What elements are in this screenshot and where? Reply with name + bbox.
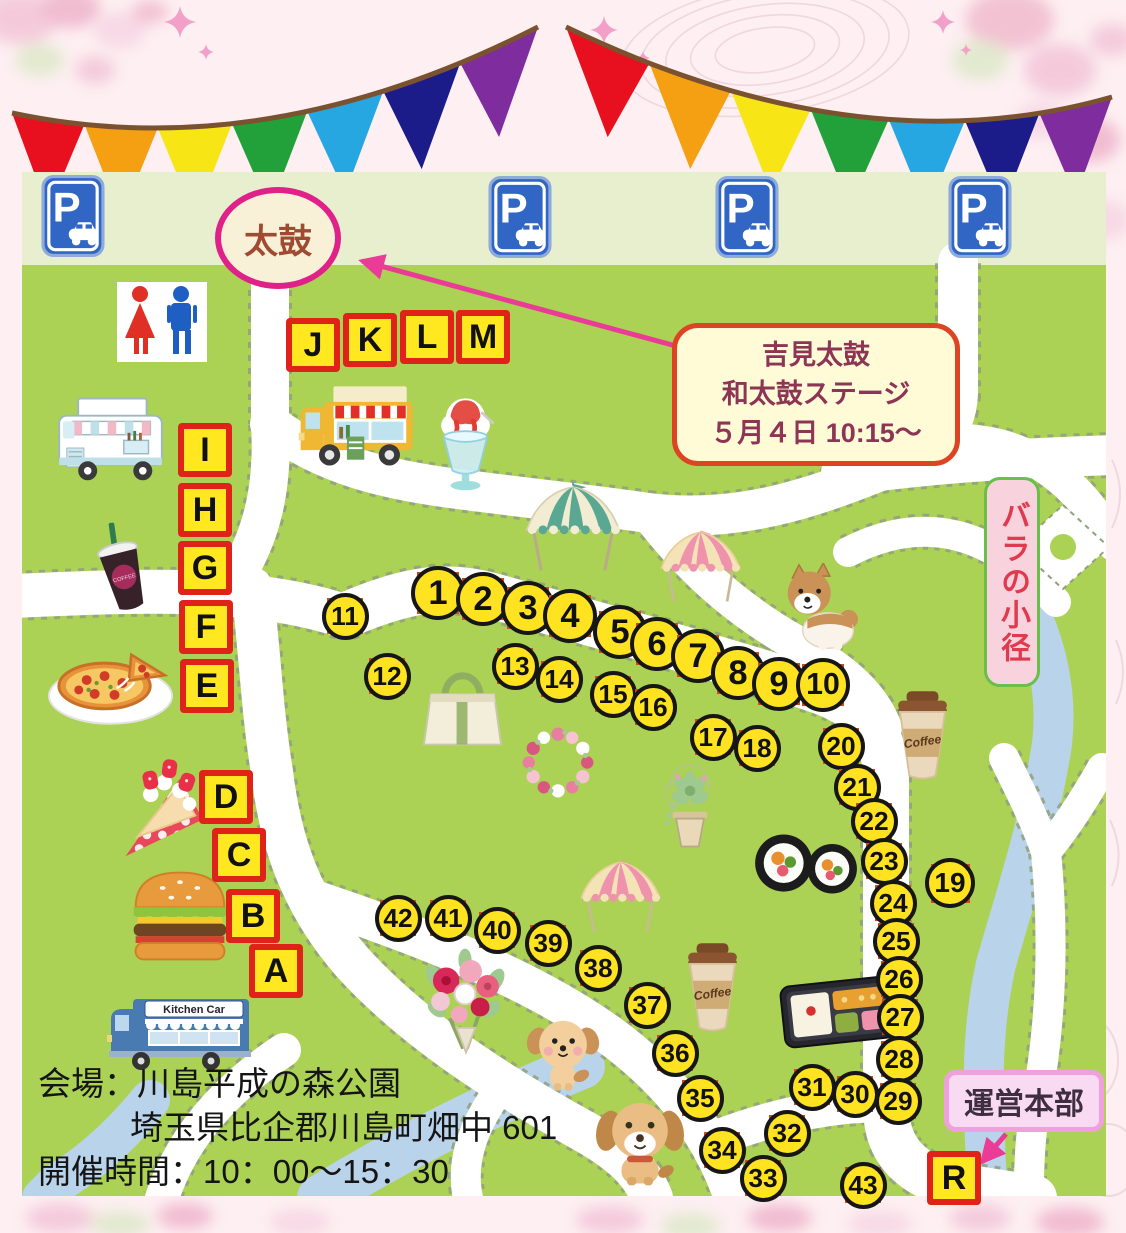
parking-sign-4 (948, 176, 1012, 258)
stall-marker-37: 37 (624, 982, 671, 1029)
stall-number: 36 (652, 1030, 699, 1077)
stall-number: 13 (492, 643, 539, 690)
parking-sign-1 (41, 175, 105, 257)
flower-wreath (514, 720, 602, 805)
tent-pink-2 (573, 857, 668, 935)
stall-number: 32 (764, 1110, 811, 1157)
stall-marker-17: 17 (690, 714, 737, 761)
stall-number: 29 (875, 1078, 922, 1125)
stage-info-line3: ５月４日 10:15～ (710, 414, 922, 453)
coffee-cup-2 (670, 932, 755, 1037)
event-map-poster: P (0, 0, 1126, 1233)
iced-coffee (80, 513, 165, 628)
food-truck-yellow (291, 375, 426, 475)
stall-marker-38: 38 (575, 945, 622, 992)
stall-number: 39 (525, 920, 572, 967)
stall-number: 11 (322, 593, 369, 640)
stall-marker-34: 34 (699, 1127, 746, 1174)
stall-number: 42 (375, 895, 422, 942)
area-marker-L: L (400, 310, 454, 364)
stall-number: 28 (876, 1036, 923, 1083)
stall-marker-40: 40 (474, 907, 521, 954)
stage-info-box: 吉見太鼓 和太鼓ステージ ５月４日 10:15～ (672, 323, 960, 466)
stall-number: 23 (861, 838, 908, 885)
crepe (106, 742, 211, 862)
kitchen-car-blue (105, 975, 255, 1075)
stall-number: 4 (543, 589, 597, 643)
area-marker-E: E (180, 659, 234, 713)
stall-marker-20: 20 (818, 723, 865, 770)
area-marker-D: D (199, 770, 253, 824)
stall-marker-4: 4 (543, 589, 597, 643)
area-marker-J: J (286, 318, 340, 372)
stall-number: 27 (877, 994, 924, 1041)
stage-info-line2: 和太鼓ステージ (722, 375, 910, 414)
hq-label-box: 運営本部 (944, 1070, 1104, 1132)
stall-number: 33 (740, 1155, 787, 1202)
stall-marker-30: 30 (832, 1071, 879, 1118)
stall-marker-32: 32 (764, 1110, 811, 1157)
rose-path-label: バラの小径 (984, 477, 1040, 687)
food-truck-white (43, 391, 178, 486)
tent-pink-1 (653, 527, 748, 605)
venue-line: 会場：川島平成の森公園 (38, 1062, 557, 1106)
stall-number: 43 (840, 1162, 887, 1209)
restroom-icon (117, 282, 207, 362)
area-marker-F: F (179, 600, 233, 654)
shaved-ice (428, 388, 503, 493)
stall-marker-39: 39 (525, 920, 572, 967)
stall-marker-43: 43 (840, 1162, 887, 1209)
stall-marker-10: 10 (796, 658, 850, 712)
stall-number: 18 (734, 725, 781, 772)
stall-number: 38 (575, 945, 622, 992)
venue-hours: 開催時間：10：00～15：30 (38, 1150, 557, 1194)
stall-marker-11: 11 (322, 593, 369, 640)
area-marker-A: A (249, 944, 303, 998)
area-marker-B: B (226, 889, 280, 943)
stall-marker-28: 28 (876, 1036, 923, 1083)
taiko-stage-oval: 太鼓 (215, 187, 341, 289)
stall-number: 14 (536, 656, 583, 703)
stall-marker-14: 14 (536, 656, 583, 703)
venue-address: 埼玉県比企郡川島町畑中 601 (38, 1106, 557, 1150)
area-marker-C: C (212, 828, 266, 882)
area-marker-H: H (178, 483, 232, 537)
stall-marker-18: 18 (734, 725, 781, 772)
area-marker-K: K (343, 313, 397, 367)
taiko-label: 太鼓 (244, 214, 312, 263)
flower-pot (650, 753, 730, 853)
stall-marker-33: 33 (740, 1155, 787, 1202)
venue-info: 会場：川島平成の森公園 埼玉県比企郡川島町畑中 601 開催時間：10：00～1… (38, 1062, 557, 1195)
stall-marker-35: 35 (677, 1075, 724, 1122)
sushi-roll (749, 825, 864, 903)
stall-number: 17 (690, 714, 737, 761)
stall-marker-12: 12 (364, 653, 411, 700)
stall-number: 12 (364, 653, 411, 700)
stall-number: 41 (425, 895, 472, 942)
stall-number: 19 (925, 858, 975, 908)
stall-number: 37 (624, 982, 671, 1029)
stage-info-line1: 吉見太鼓 (762, 336, 870, 375)
dog-puppy (590, 1090, 690, 1190)
stall-number: 34 (699, 1127, 746, 1174)
pizza (45, 638, 180, 730)
stall-marker-41: 41 (425, 895, 472, 942)
stall-number: 16 (630, 684, 677, 731)
tent-green (517, 482, 629, 574)
stall-marker-36: 36 (652, 1030, 699, 1077)
stall-number: 35 (677, 1075, 724, 1122)
stall-number: 20 (818, 723, 865, 770)
stall-number: 40 (474, 907, 521, 954)
stall-marker-42: 42 (375, 895, 422, 942)
stall-marker-16: 16 (630, 684, 677, 731)
area-marker-M: M (456, 310, 510, 364)
parking-sign-3 (715, 176, 779, 258)
area-marker-G: G (178, 541, 232, 595)
stall-number: 30 (832, 1071, 879, 1118)
stall-marker-29: 29 (875, 1078, 922, 1125)
stall-marker-19: 19 (925, 858, 975, 908)
stall-marker-27: 27 (877, 994, 924, 1041)
dog-shiba (773, 563, 868, 653)
stall-number: 10 (796, 658, 850, 712)
coffee-cup-1 (880, 680, 965, 785)
stall-marker-31: 31 (789, 1064, 836, 1111)
area-marker-I: I (178, 423, 232, 477)
flower-bouquet (410, 943, 520, 1058)
stall-marker-13: 13 (492, 643, 539, 690)
stall-number: 31 (789, 1064, 836, 1111)
parking-sign-2 (488, 176, 552, 258)
stall-marker-23: 23 (861, 838, 908, 885)
area-marker-R: R (927, 1151, 981, 1205)
